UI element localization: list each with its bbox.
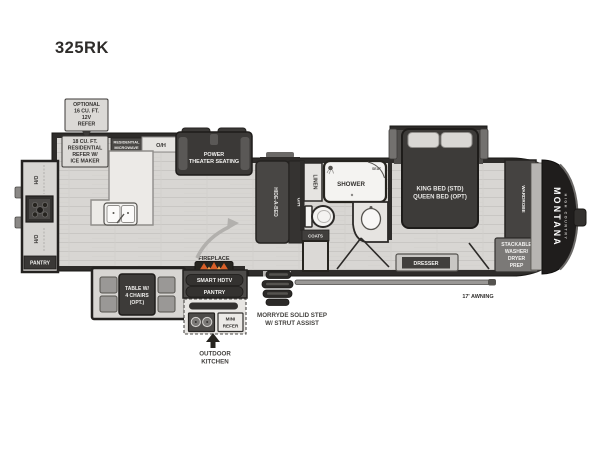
hide-a-bed-sofa: HIDE-A-BED O/H [256, 152, 304, 243]
outdoor-kitchen: MINI REFER [184, 299, 246, 334]
shower-label: SHOWER [337, 181, 365, 188]
bed-line1: KING BED (STD) [417, 187, 464, 193]
outdoor-counter [189, 303, 238, 310]
shower-seat-label: SEAT [372, 167, 382, 171]
floorplan-page: 325RK OPTIONAL 16 CU. FT. 12V REFER O/H [0, 0, 600, 450]
stackable-line4: PREP [510, 263, 524, 269]
theater-seating-line1: POWER [204, 152, 224, 158]
vanity-sink [362, 209, 381, 230]
microwave-line2: MICROWAVE [114, 145, 139, 150]
hide-a-bed-label: HIDE-A-BED [272, 187, 278, 217]
coats-closet [303, 241, 328, 271]
mini-refer: MINI REFER [218, 313, 243, 332]
chair [158, 296, 175, 312]
table-line3: (OPT.) [130, 300, 145, 306]
floorplan-svg: 325RK OPTIONAL 16 CU. FT. 12V REFER O/H [0, 0, 600, 450]
slide-tab [389, 129, 397, 159]
table-line2: 4 CHAIRS [125, 293, 149, 299]
drain [351, 194, 353, 196]
overhead-cabinet-label: O/H [32, 235, 38, 244]
refer-line4: ICE MAKER [70, 159, 99, 165]
console [210, 134, 218, 145]
cooktop [26, 196, 53, 222]
refer-line3: REFER W/ [72, 152, 98, 158]
outdoor-kitchen-line2: KITCHEN [201, 359, 229, 366]
vanity [353, 202, 388, 242]
page-title: 325RK [55, 39, 109, 57]
double-sink [104, 203, 137, 225]
coats-label: COATS [308, 234, 323, 239]
refer-line1: 18 CU. FT. [73, 139, 98, 145]
optional-refer-line2: 16 CU. FT. [74, 109, 99, 115]
faucet-icon [370, 206, 373, 209]
entry-steps [262, 271, 293, 306]
pillow [408, 133, 439, 148]
armrest [241, 137, 250, 170]
wardrobe-label: WARDROBE [521, 185, 526, 212]
optional-refer-line4: REFER [78, 122, 96, 128]
griddle [189, 313, 215, 332]
chair [100, 277, 117, 293]
optional-refer-line3: 12V [82, 115, 92, 121]
stackable-line1: STACKABLE [501, 242, 532, 248]
chair [100, 296, 117, 312]
stackable-line3: DRYER [508, 256, 526, 262]
mini-refer-line2: REFER [223, 324, 239, 329]
bed-line2: QUEEN BED (OPT) [413, 195, 467, 201]
optional-refer-line1: OPTIONAL [73, 102, 101, 108]
pantry-bar-label: PANTRY [204, 290, 226, 296]
overhead-cabinet-label: O/H [32, 176, 38, 185]
theater-seating: POWER THEATER SEATING [176, 128, 252, 175]
armrest [179, 137, 188, 170]
dinette-slide: TABLE W/ 4 CHAIRS (OPT.) [92, 268, 185, 319]
awning-label: 17' AWNING [462, 294, 493, 300]
optional-refer-callout: OPTIONAL 16 CU. FT. 12V REFER [65, 99, 108, 138]
dresser: DRESSER [396, 254, 458, 271]
brand-name: MONTANA [552, 187, 562, 247]
pillow [441, 133, 472, 148]
stackable-line2: WASHER/ [505, 249, 529, 255]
shower: SEAT SHOWER [324, 161, 386, 202]
mini-refer-line1: MINI [226, 317, 236, 322]
morryde-line1: MORRYDE SOLID STEP [257, 312, 327, 319]
awning-rod [295, 280, 494, 285]
morryde-line2: W/ STRUT ASSIST [265, 320, 319, 327]
overhead-cabinet-label: O/H [156, 143, 166, 149]
rear-kitchen-slide: O/H O/H PANTRY [15, 161, 58, 272]
theater-seating-line2: THEATER SEATING [189, 159, 239, 165]
dresser-label: DRESSER [413, 261, 438, 267]
awning: 17' AWNING [295, 279, 496, 300]
refer-line2: RESIDENTIAL [68, 146, 103, 152]
table-line1: TABLE W/ [125, 286, 149, 292]
hitch-pin [574, 209, 586, 226]
morryde-step-callout: MORRYDE SOLID STEP W/ STRUT ASSIST [257, 312, 327, 327]
outdoor-kitchen-arrow-stem [211, 342, 216, 348]
chair [158, 277, 175, 293]
smart-hdtv-label: SMART HDTV [197, 278, 233, 284]
outdoor-kitchen-line1: OUTDOOR [199, 351, 231, 358]
brand-sub: HIGH COUNTRY [564, 194, 568, 241]
rear-pantry-label: PANTRY [30, 261, 51, 267]
awning-end-cap [488, 279, 496, 286]
toilet [305, 206, 334, 227]
linen-label: LINEN [312, 175, 318, 190]
slide-tab [480, 129, 488, 159]
front-steps [531, 163, 542, 270]
bed: KING BED (STD) QUEEN BED (OPT) [402, 129, 478, 228]
front-cap: MONTANA HIGH COUNTRY [531, 160, 586, 274]
